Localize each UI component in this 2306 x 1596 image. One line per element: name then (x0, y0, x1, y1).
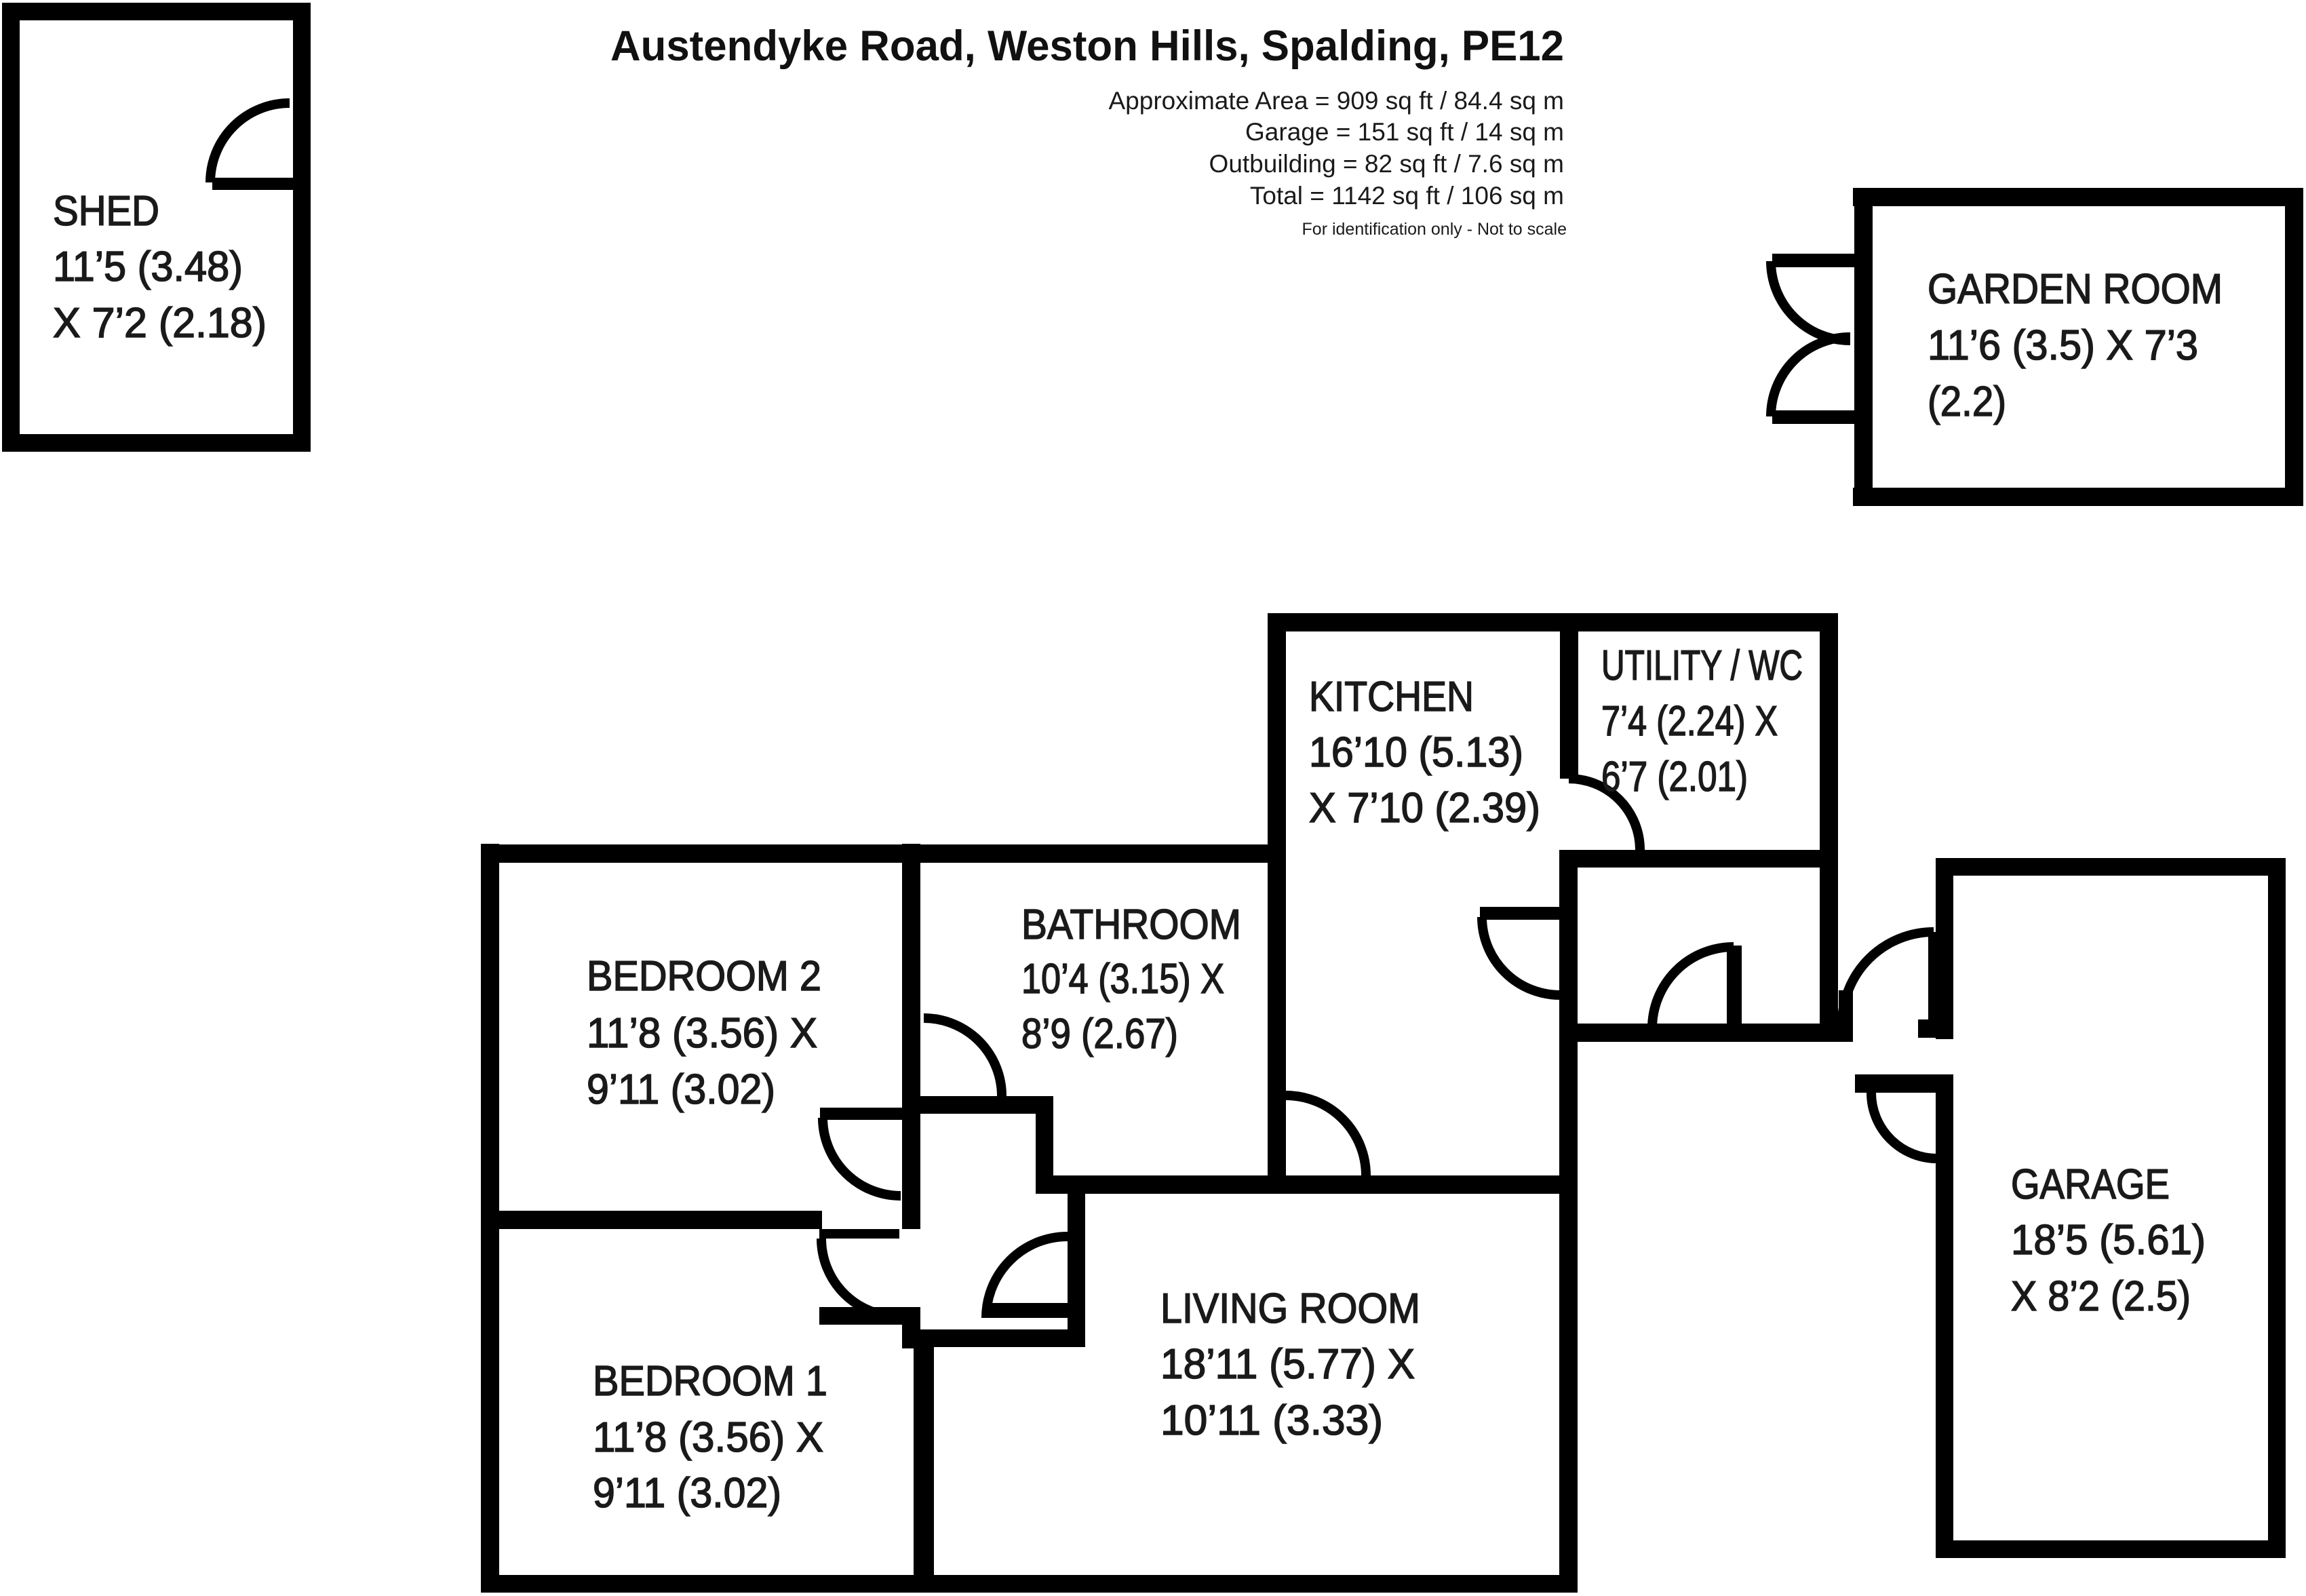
svg-text:Approximate Area = 909 sq ft /: Approximate Area = 909 sq ft / 84.4 sq m (1108, 87, 1564, 115)
svg-text:Total = 1142 sq ft / 106 sq m: Total = 1142 sq ft / 106 sq m (1250, 182, 1564, 210)
svg-text:10’4 (3.15) X: 10’4 (3.15) X (1021, 956, 1224, 1003)
svg-text:8’9 (2.67): 8’9 (2.67) (1021, 1011, 1178, 1057)
svg-text:10’11 (3.33): 10’11 (3.33) (1160, 1397, 1383, 1444)
svg-text:11’6 (3.5) X 7’3: 11’6 (3.5) X 7’3 (1928, 322, 2198, 369)
svg-text:Austendyke Road, Weston Hills,: Austendyke Road, Weston Hills, Spalding,… (610, 22, 1564, 70)
svg-text:9’11 (3.02): 9’11 (3.02) (593, 1470, 781, 1517)
svg-text:X 7’10 (2.39): X 7’10 (2.39) (1309, 785, 1540, 832)
svg-text:BATHROOM: BATHROOM (1021, 901, 1241, 948)
svg-text:Outbuilding = 82 sq ft / 7.6 s: Outbuilding = 82 sq ft / 7.6 sq m (1209, 150, 1564, 178)
svg-text:18’11 (5.77) X: 18’11 (5.77) X (1160, 1341, 1415, 1388)
svg-text:7’4 (2.24) X: 7’4 (2.24) X (1601, 698, 1778, 745)
svg-text:X 8’2 (2.5): X 8’2 (2.5) (2011, 1273, 2191, 1320)
svg-text:For identification only - Not: For identification only - Not to scale (1302, 220, 1567, 239)
svg-text:BEDROOM 1: BEDROOM 1 (593, 1358, 827, 1405)
svg-text:18’5 (5.61): 18’5 (5.61) (2011, 1217, 2206, 1264)
svg-text:Garage = 151 sq ft / 14 sq m: Garage = 151 sq ft / 14 sq m (1245, 118, 1564, 146)
svg-text:11’8 (3.56) X: 11’8 (3.56) X (593, 1414, 823, 1461)
svg-text:BEDROOM 2: BEDROOM 2 (587, 953, 821, 1000)
svg-text:(2.2): (2.2) (1928, 378, 2006, 425)
svg-text:UTILITY / WC: UTILITY / WC (1601, 642, 1803, 689)
svg-text:16’10 (5.13): 16’10 (5.13) (1309, 729, 1523, 776)
svg-text:11’8 (3.56) X: 11’8 (3.56) X (587, 1010, 817, 1057)
svg-text:GARAGE: GARAGE (2011, 1161, 2170, 1208)
svg-text:GARDEN ROOM: GARDEN ROOM (1928, 266, 2223, 313)
svg-text:11’5 (3.48): 11’5 (3.48) (53, 244, 243, 290)
svg-text:6’7 (2.01): 6’7 (2.01) (1601, 754, 1748, 800)
svg-text:X 7’2 (2.18): X 7’2 (2.18) (53, 300, 267, 347)
svg-text:KITCHEN: KITCHEN (1309, 674, 1474, 720)
svg-text:LIVING ROOM: LIVING ROOM (1160, 1285, 1420, 1332)
svg-text:SHED: SHED (53, 188, 159, 235)
svg-text:9’11 (3.02): 9’11 (3.02) (587, 1066, 775, 1113)
